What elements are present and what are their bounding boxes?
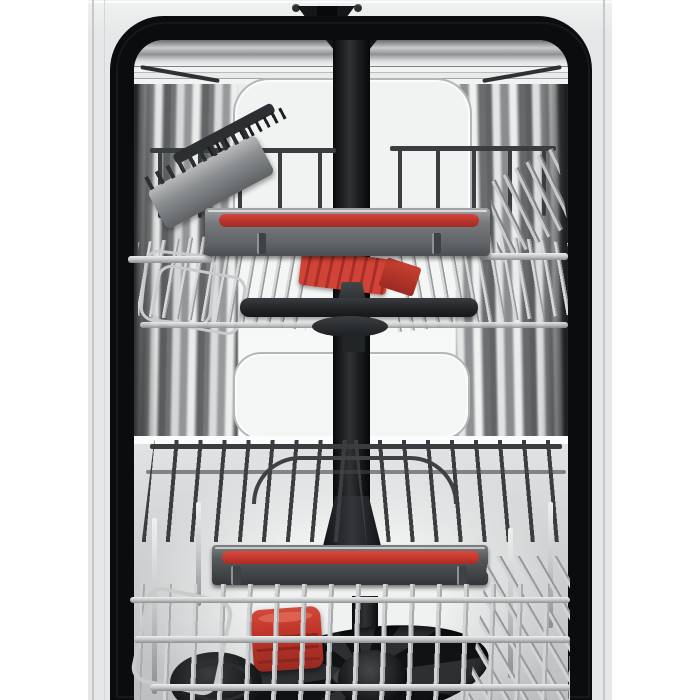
mid-spray-arm [240, 298, 478, 317]
upper-basket-red-stripe [219, 214, 479, 227]
lower-handle-slot [457, 566, 467, 585]
upper-basket-front-rail-left [128, 256, 212, 263]
cabinet-right-edge-line [603, 0, 605, 700]
cabinet-left-edge-line-2 [104, 0, 105, 700]
lower-basket-rail-1 [130, 597, 570, 603]
lower-basket-front-rail [150, 684, 570, 691]
screw-icon [354, 4, 362, 12]
cabinet-left-edge-line [92, 0, 94, 700]
upper-handle-slot [432, 233, 441, 254]
guard-post [398, 148, 402, 216]
mid-spray-arm-stem [343, 332, 365, 352]
lower-handle-slot [231, 566, 241, 585]
cabinet-top-edge [88, 1, 612, 3]
guard-post [436, 148, 440, 216]
upper-basket-front-rail-right [480, 253, 568, 260]
lower-basket-dark-rail [150, 444, 562, 449]
upper-handle-slot [257, 233, 266, 254]
lower-basket-rail-2 [134, 636, 570, 643]
guard-post [472, 148, 476, 216]
lower-basket-wire-dip [252, 456, 458, 504]
lower-basket-red-stripe [222, 551, 479, 564]
dishwasher-interior-photo [0, 0, 700, 700]
